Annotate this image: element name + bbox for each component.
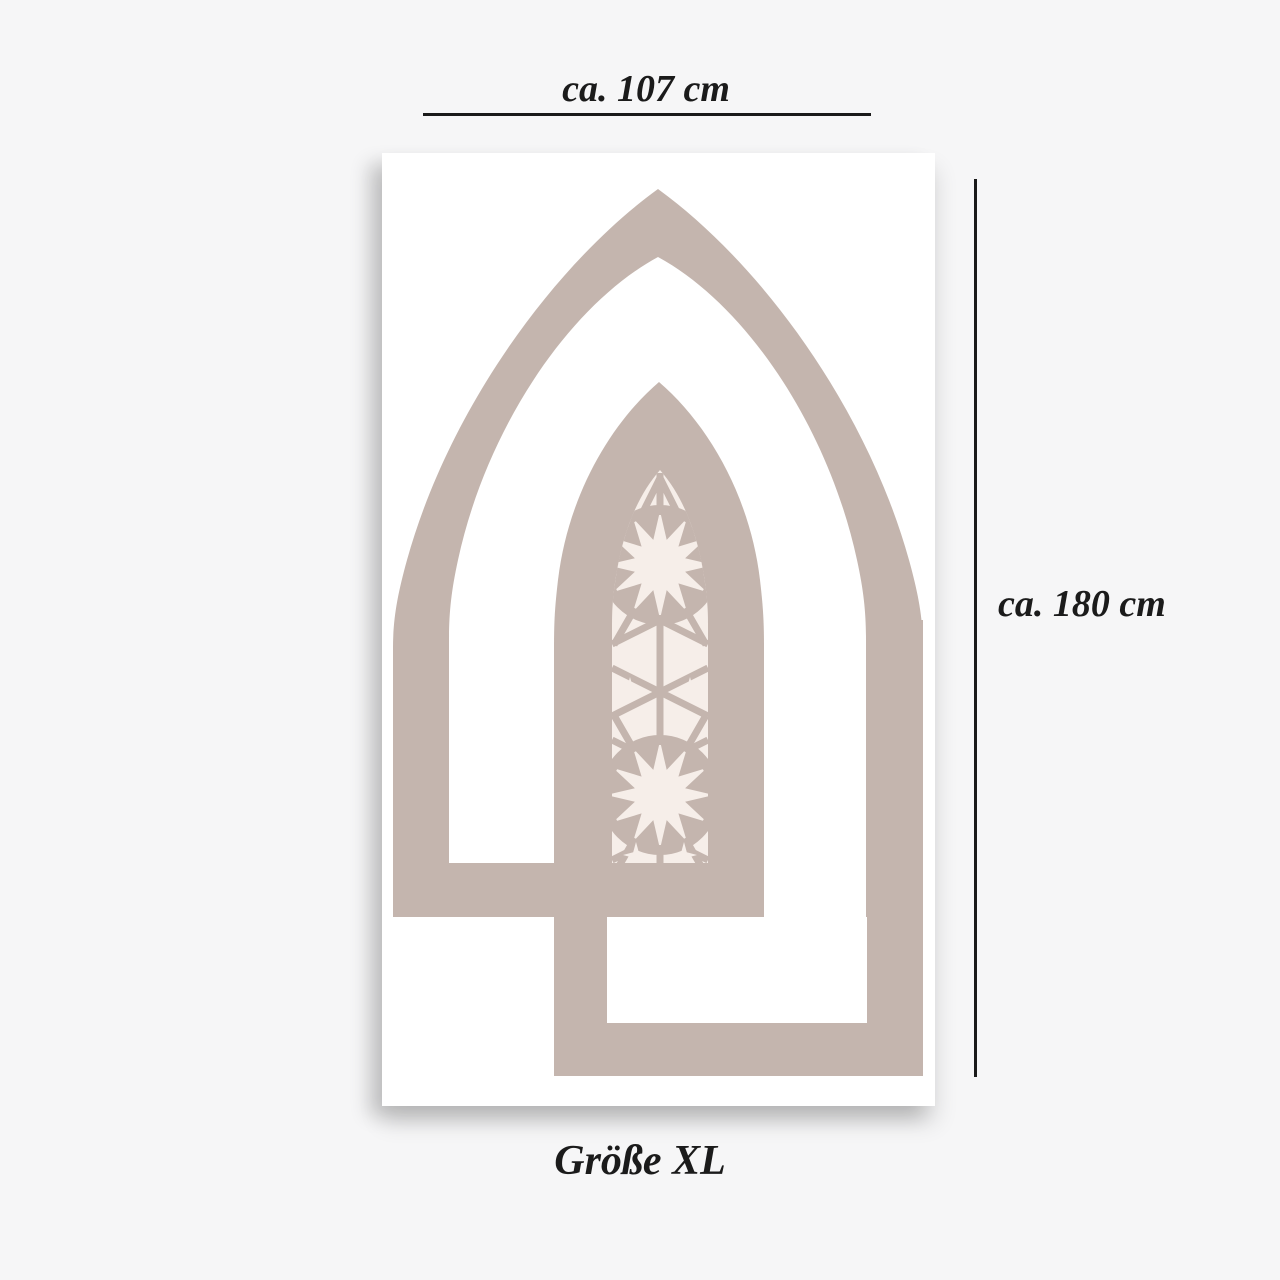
width-dimension-line xyxy=(423,113,871,116)
height-dimension-label: ca. 180 cm xyxy=(998,585,1166,623)
width-dimension-label: ca. 107 cm xyxy=(562,70,730,108)
outer-arch-right-leg xyxy=(867,620,923,1076)
product-size-diagram: ca. 107 cm ca. 180 cm Größe XL xyxy=(0,0,1280,1280)
size-caption: Größe XL xyxy=(554,1140,726,1182)
bottom-bar xyxy=(554,1023,923,1076)
height-dimension-line xyxy=(974,179,977,1077)
product-canvas xyxy=(382,153,935,1106)
arch-artwork xyxy=(382,153,935,1106)
